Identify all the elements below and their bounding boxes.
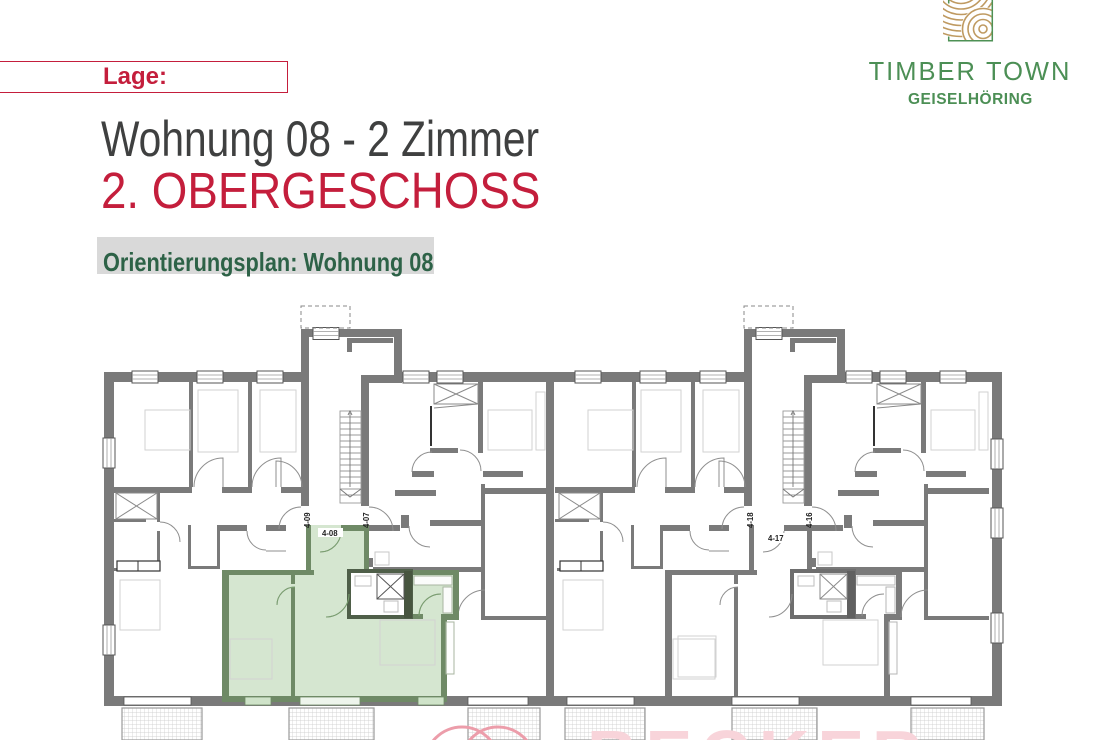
svg-text:4-16: 4-16 bbox=[805, 512, 814, 528]
svg-text:4-09: 4-09 bbox=[303, 512, 312, 528]
svg-text:4-18: 4-18 bbox=[746, 512, 755, 528]
svg-text:4-07: 4-07 bbox=[362, 512, 371, 528]
svg-text:4-17: 4-17 bbox=[768, 534, 784, 543]
svg-text:BECKER: BECKER bbox=[587, 716, 931, 740]
svg-text:4-08: 4-08 bbox=[322, 529, 338, 538]
